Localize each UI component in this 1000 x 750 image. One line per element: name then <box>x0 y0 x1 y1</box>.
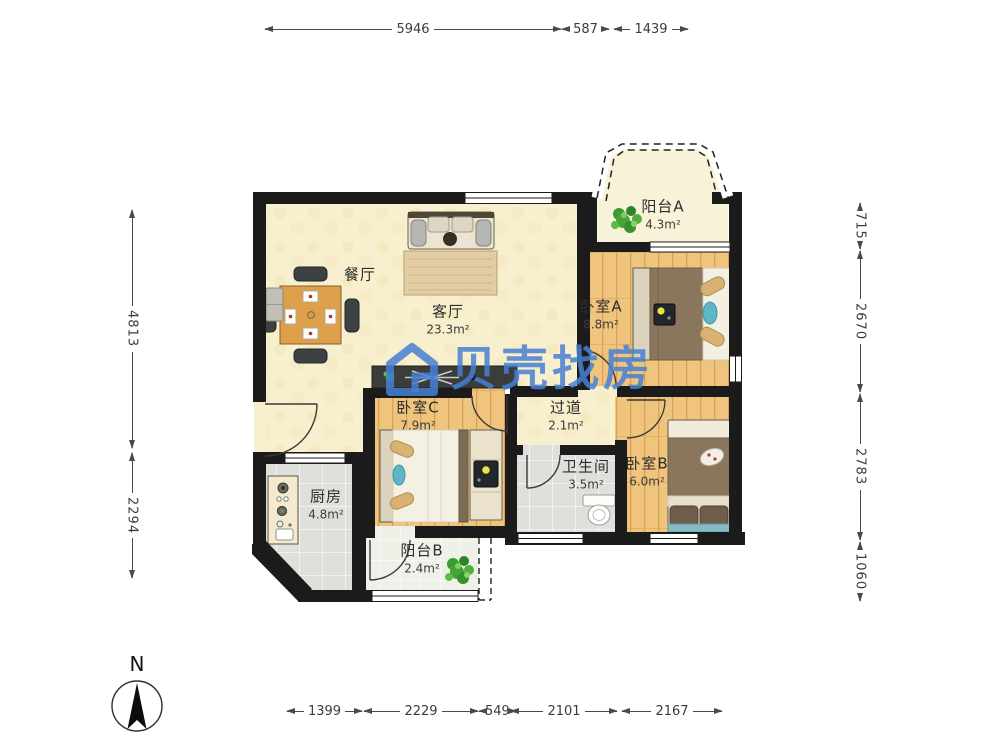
dimension-left-0: 4813 <box>124 210 140 448</box>
dimension-right-0: 715 <box>852 203 868 249</box>
room-label-balcony-b: 阳台B 2.4m² <box>400 541 443 576</box>
room-label-living: 客厅 23.3m² <box>426 302 469 337</box>
dimension-right-1: 2670 <box>852 251 868 392</box>
room-label-bathroom: 卫生间 3.5m² <box>562 457 610 492</box>
room-label-dining: 餐厅 <box>344 265 376 285</box>
bed-single-b <box>668 420 730 532</box>
sofa <box>408 212 494 249</box>
dimension-bottom-1: 2229 <box>364 704 478 719</box>
wardrobe <box>470 430 502 520</box>
dimension-bottom-0: 1399 <box>287 704 362 719</box>
entry-cabinet <box>266 288 283 321</box>
dimension-top-2: 1439 <box>614 22 688 37</box>
room-label-hallway: 过道 2.1m² <box>548 398 584 433</box>
room-label-bedroom-c: 卧室C 7.9m² <box>396 398 439 433</box>
dimension-left-1: 2294 <box>124 453 140 578</box>
dimension-bottom-4: 2167 <box>622 704 722 719</box>
room-label-balcony-a: 阳台A 4.3m² <box>641 197 684 232</box>
dimension-right-2: 2783 <box>852 394 868 540</box>
dimension-right-3: 1060 <box>852 542 868 601</box>
dimension-bottom-3: 2101 <box>511 704 617 719</box>
dimension-top-1: 587 <box>562 22 609 37</box>
dimension-top-0: 5946 <box>265 22 561 37</box>
rug <box>404 251 497 295</box>
floor-plan-canvas: 贝壳找房 餐厅 客厅 23.3m² 阳台A 4.3m² 卧室A 8.8m² 卧室… <box>0 0 1000 750</box>
bed-double-c <box>380 430 468 522</box>
room-label-bedroom-b: 卧室B 6.0m² <box>625 454 668 489</box>
room-label-kitchen: 厨房 4.8m² <box>308 487 344 522</box>
north-label: N <box>130 652 145 676</box>
room-label-bedroom-a: 卧室A 8.8m² <box>579 297 622 332</box>
compass <box>112 681 162 731</box>
dashed-wall <box>479 538 491 600</box>
kitchen-counter <box>268 476 298 544</box>
watermark-text: 贝壳找房 <box>450 340 654 400</box>
watermark: 贝壳找房 <box>382 340 654 400</box>
compass-needle-icon <box>128 683 147 729</box>
dimension-bottom-2: 549 <box>479 704 508 719</box>
beike-logo-icon <box>382 340 442 400</box>
